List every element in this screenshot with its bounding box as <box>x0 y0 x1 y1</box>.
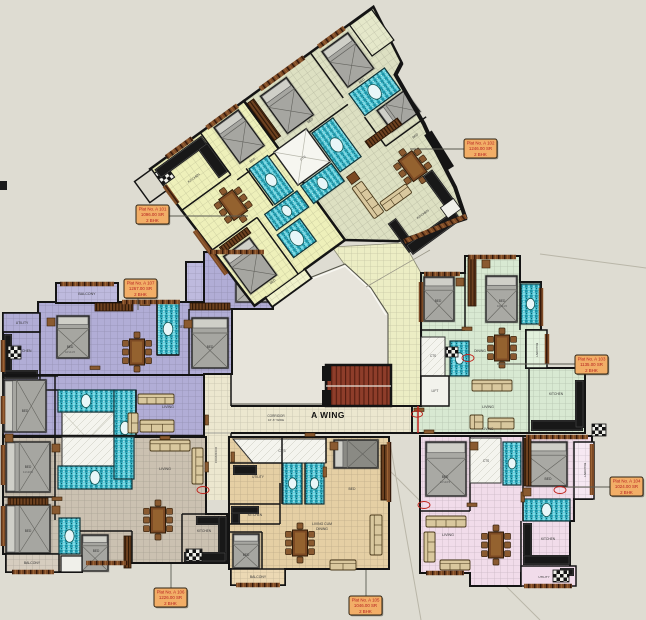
svg-text:2 BHK: 2 BHK <box>474 152 487 157</box>
svg-text:KITCHEN: KITCHEN <box>549 392 564 396</box>
svg-text:LIFT: LIFT <box>432 389 439 393</box>
svg-text:BED: BED <box>67 345 74 349</box>
svg-text:Plat No. A 102: Plat No. A 102 <box>467 141 495 146</box>
svg-text:Plat No. A 107: Plat No. A 107 <box>127 281 155 286</box>
svg-text:A WING: A WING <box>311 410 345 420</box>
svg-text:Plat No. A 104: Plat No. A 104 <box>613 479 641 484</box>
svg-text:KITCHEN: KITCHEN <box>248 513 263 517</box>
svg-text:2 BHK: 2 BHK <box>585 368 598 373</box>
svg-text:16'-6" WIDE: 16'-6" WIDE <box>268 418 284 422</box>
svg-text:UTILITY: UTILITY <box>538 575 549 579</box>
svg-text:BALCONY: BALCONY <box>24 561 41 565</box>
svg-text:1024.00 SR: 1024.00 SR <box>615 484 638 489</box>
svg-text:LIVING: LIVING <box>482 405 494 409</box>
svg-text:BALCONY: BALCONY <box>78 292 96 296</box>
svg-text:BED: BED <box>243 553 250 557</box>
svg-text:2 BHK: 2 BHK <box>620 490 633 495</box>
svg-text:BED: BED <box>93 549 100 553</box>
svg-text:CTS: CTS <box>430 354 436 358</box>
svg-text:BED: BED <box>25 529 32 533</box>
svg-text:DINING: DINING <box>474 349 486 353</box>
svg-text:BED: BED <box>499 299 506 303</box>
svg-text:11'x10'0: 11'x10'0 <box>23 470 33 474</box>
svg-text:LIVING: LIVING <box>482 427 493 431</box>
svg-text:BED: BED <box>207 345 214 349</box>
svg-text:Plat No. A 105: Plat No. A 105 <box>352 598 380 603</box>
svg-text:LIVING CUM: LIVING CUM <box>312 522 332 526</box>
svg-text:BALCONY: BALCONY <box>535 343 539 357</box>
svg-text:2 BHK: 2 BHK <box>134 292 147 297</box>
svg-text:KITCHEN: KITCHEN <box>541 537 556 541</box>
svg-text:10'x11'0: 10'x11'0 <box>497 304 507 308</box>
svg-text:BED: BED <box>545 477 553 481</box>
svg-text:1135.00 SR: 1135.00 SR <box>580 362 603 367</box>
svg-text:UTILITY: UTILITY <box>16 321 29 325</box>
svg-text:LIVING: LIVING <box>162 405 174 409</box>
svg-text:DINING: DINING <box>316 527 328 531</box>
svg-text:2 BHK: 2 BHK <box>164 601 177 606</box>
svg-text:CTS: CTS <box>483 459 489 463</box>
svg-text:1246.00 SR: 1246.00 SR <box>469 146 492 151</box>
svg-text:BALCONY: BALCONY <box>583 463 587 477</box>
svg-text:2 BHK: 2 BHK <box>359 609 372 614</box>
svg-text:LIVING: LIVING <box>442 533 454 537</box>
svg-text:BED: BED <box>22 409 29 413</box>
svg-text:BED: BED <box>442 475 449 479</box>
svg-text:LIVING: LIVING <box>159 467 171 471</box>
svg-text:1267.00 SR: 1267.00 SR <box>129 286 152 291</box>
svg-text:Plat No. A 103: Plat No. A 103 <box>578 357 606 362</box>
svg-text:KITCHEN: KITCHEN <box>197 529 212 533</box>
svg-text:1226.00 SR: 1226.00 SR <box>159 595 182 600</box>
svg-text:1046.00 SR: 1046.00 SR <box>354 603 377 608</box>
svg-text:BALCONY: BALCONY <box>250 575 267 579</box>
svg-text:10'x11'6: 10'x11'6 <box>65 350 75 354</box>
svg-text:12'x10'6: 12'x10'6 <box>440 480 451 484</box>
svg-text:Plat No. A 106: Plat No. A 106 <box>157 590 185 595</box>
svg-text:1096.00 SR: 1096.00 SR <box>141 212 164 217</box>
svg-text:Plat No. A 101: Plat No. A 101 <box>139 207 167 212</box>
svg-text:BED: BED <box>349 487 357 491</box>
svg-text:2 BHK: 2 BHK <box>146 218 159 223</box>
svg-text:CORRIDOR: CORRIDOR <box>214 446 218 463</box>
svg-text:UTILITY: UTILITY <box>252 475 265 479</box>
svg-text:BED: BED <box>25 465 32 469</box>
svg-text:BED: BED <box>435 299 442 303</box>
